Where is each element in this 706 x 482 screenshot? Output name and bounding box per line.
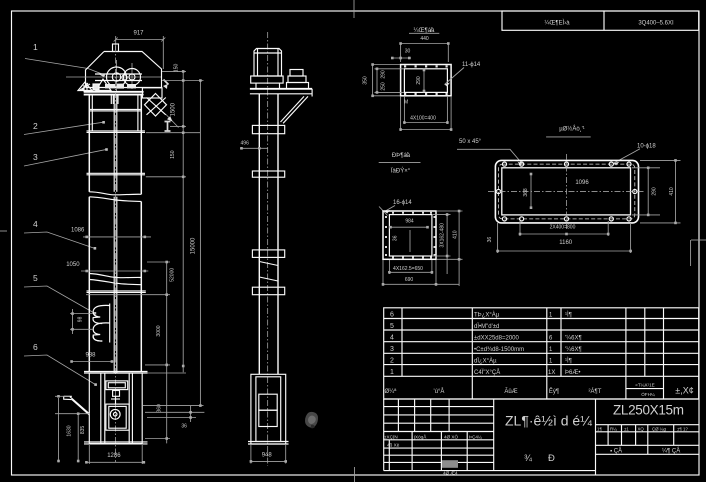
svg-text:2: 2 xyxy=(33,121,38,131)
svg-text:496: 496 xyxy=(241,141,250,147)
svg-text:ÞÇ4¼: ÞÇ4¼ xyxy=(469,434,482,439)
svg-text:C4Ï"X°ÇÅ: C4Ï"X°ÇÅ xyxy=(474,369,500,376)
svg-text:1086: 1086 xyxy=(71,228,85,234)
svg-text:'ú°Å: 'ú°Å xyxy=(434,388,445,395)
svg-text:«T¼X¹1E: «T¼X¹1E xyxy=(635,382,654,387)
svg-text:3000: 3000 xyxy=(156,325,162,336)
svg-text:¼¶ ÇÅ: ¼¶ ÇÅ xyxy=(662,448,680,455)
svg-text:dÏ¿X°Àµ: dÏ¿X°Àµ xyxy=(474,358,497,365)
svg-text:440: 440 xyxy=(420,36,429,42)
svg-text:Ð: Ð xyxy=(548,453,555,464)
svg-text:¾: ¾ xyxy=(524,453,533,464)
svg-text:1: 1 xyxy=(390,369,394,376)
svg-text:4X162.5=650: 4X162.5=650 xyxy=(393,266,423,272)
svg-text:5: 5 xyxy=(33,273,38,283)
svg-text:XQ: XQ xyxy=(638,426,645,431)
svg-text:1¶: 1¶ xyxy=(597,426,602,431)
svg-text:1286: 1286 xyxy=(107,453,121,459)
svg-text:690: 690 xyxy=(405,277,414,283)
svg-text:3: 3 xyxy=(390,346,394,353)
svg-text:984: 984 xyxy=(405,219,414,225)
svg-text:150: 150 xyxy=(173,64,179,73)
svg-text:50 x 45°: 50 x 45° xyxy=(459,139,482,145)
svg-text:Êý¶: Êý¶ xyxy=(549,387,559,395)
svg-text:1X: 1X xyxy=(548,370,555,376)
svg-text:ZL250X15m: ZL250X15m xyxy=(613,403,684,418)
svg-text:6: 6 xyxy=(33,342,38,352)
svg-text:36: 36 xyxy=(393,235,399,241)
svg-text:290: 290 xyxy=(652,187,658,196)
svg-text:ÐÞ¶á̸à: ÐÞ¶á̸à xyxy=(392,153,411,159)
svg-text:98: 98 xyxy=(78,316,84,322)
svg-text:3Q400–5.6XI: 3Q400–5.6XI xyxy=(638,21,674,27)
svg-text:1160: 1160 xyxy=(559,240,573,246)
svg-text:350: 350 xyxy=(363,76,369,85)
svg-text:ÏàÐÝ×°: ÏàÐÝ×° xyxy=(391,168,411,175)
svg-text:948: 948 xyxy=(262,453,273,459)
svg-text:290: 290 xyxy=(416,76,422,85)
svg-text:410: 410 xyxy=(669,187,675,196)
svg-text:1050: 1050 xyxy=(66,262,80,268)
svg-text:10-ϕ18: 10-ϕ18 xyxy=(637,144,656,150)
svg-text:¼Œ¶EÌ›à: ¼Œ¶EÌ›à xyxy=(544,20,570,27)
svg-text:jXòqÅ: jXòqÅ xyxy=(413,433,427,439)
svg-text:988: 988 xyxy=(86,353,97,359)
svg-text:•C±d¾d8-1500mm: •C±d¾d8-1500mm xyxy=(474,347,524,353)
svg-text:▪ ÇÅ: ▪ ÇÅ xyxy=(610,448,622,455)
svg-text:Ø¼ª: Ø¼ª xyxy=(385,388,398,395)
svg-text:410: 410 xyxy=(453,230,459,239)
svg-text:250: 250 xyxy=(381,82,387,91)
svg-text:¹Ì¶: ¹Ì¶ xyxy=(565,312,572,319)
svg-text:835: 835 xyxy=(80,426,86,435)
svg-text:'¼6X¶: '¼6X¶ xyxy=(565,347,582,353)
svg-text:5: 5 xyxy=(390,323,394,330)
svg-text:ZL¶·ê½ì d é¼: ZL¶·ê½ì d é¼ xyxy=(505,413,592,429)
svg-text:M: M xyxy=(404,100,408,106)
svg-text:ÓFH¼: ÓFH¼ xyxy=(641,391,655,397)
svg-text:36: 36 xyxy=(487,237,493,243)
svg-text:6: 6 xyxy=(390,312,394,319)
svg-text:±XÇ(N: ±XÇ(N xyxy=(384,434,398,439)
svg-text:3X162-480: 3X162-480 xyxy=(440,223,446,248)
svg-text:1500: 1500 xyxy=(171,102,177,116)
svg-text:2: 2 xyxy=(390,358,394,365)
svg-text:dÏ•M"d'±d: dÏ•M"d'±d xyxy=(474,323,499,330)
svg-text:±,X¢: ±,X¢ xyxy=(675,386,693,396)
svg-text:ÃûÆ: ÃûÆ xyxy=(504,388,517,395)
svg-text:4ß Xè: 4ß Xè xyxy=(387,443,400,448)
svg-text:TÞ¿X°Àµ: TÞ¿X°Àµ xyxy=(474,312,500,319)
svg-text:µØ½Åò¸'¹: µØ½Åò¸'¹ xyxy=(559,126,585,133)
svg-text:±dXX25d8=2000: ±dXX25d8=2000 xyxy=(474,336,519,342)
svg-text:±¶ 1?: ±¶ 1? xyxy=(677,426,688,431)
svg-text:'¼6X¶: '¼6X¶ xyxy=(565,336,582,342)
svg-text:±1: ±1 xyxy=(624,426,629,431)
svg-text:52000: 52000 xyxy=(170,268,176,282)
svg-text:2X400=800: 2X400=800 xyxy=(550,225,576,231)
svg-text:15000: 15000 xyxy=(191,237,197,254)
svg-text:368: 368 xyxy=(523,188,529,197)
svg-text:3: 3 xyxy=(33,152,38,162)
svg-text:¹Ì¶: ¹Ì¶ xyxy=(565,358,572,365)
svg-text:30: 30 xyxy=(405,49,411,55)
svg-text:²Á¶T: ²Á¶T xyxy=(589,388,602,395)
svg-text:11-ϕ14: 11-ϕ14 xyxy=(462,62,481,68)
svg-text:16-ϕ14: 16-ϕ14 xyxy=(393,200,412,206)
svg-text:36: 36 xyxy=(181,423,187,429)
svg-text:R¼: R¼ xyxy=(610,426,617,431)
svg-text:4Ø XÒ: 4Ø XÒ xyxy=(444,433,458,439)
svg-text:1096: 1096 xyxy=(575,180,589,186)
svg-text:290: 290 xyxy=(381,70,387,79)
svg-text:1630: 1630 xyxy=(67,425,73,436)
svg-text:1: 1 xyxy=(33,42,38,52)
svg-text:ÇØ ¼g: ÇØ ¼g xyxy=(652,426,666,431)
svg-text:150: 150 xyxy=(170,150,176,159)
svg-text:4X100=400: 4X100=400 xyxy=(410,116,436,122)
svg-text:4: 4 xyxy=(33,219,38,229)
svg-text:4Ø Æ4: 4Ø Æ4 xyxy=(443,471,458,476)
svg-text:917: 917 xyxy=(133,31,144,37)
svg-text:4: 4 xyxy=(390,335,394,342)
svg-text:Þ6Æ•: Þ6Æ• xyxy=(565,370,580,376)
